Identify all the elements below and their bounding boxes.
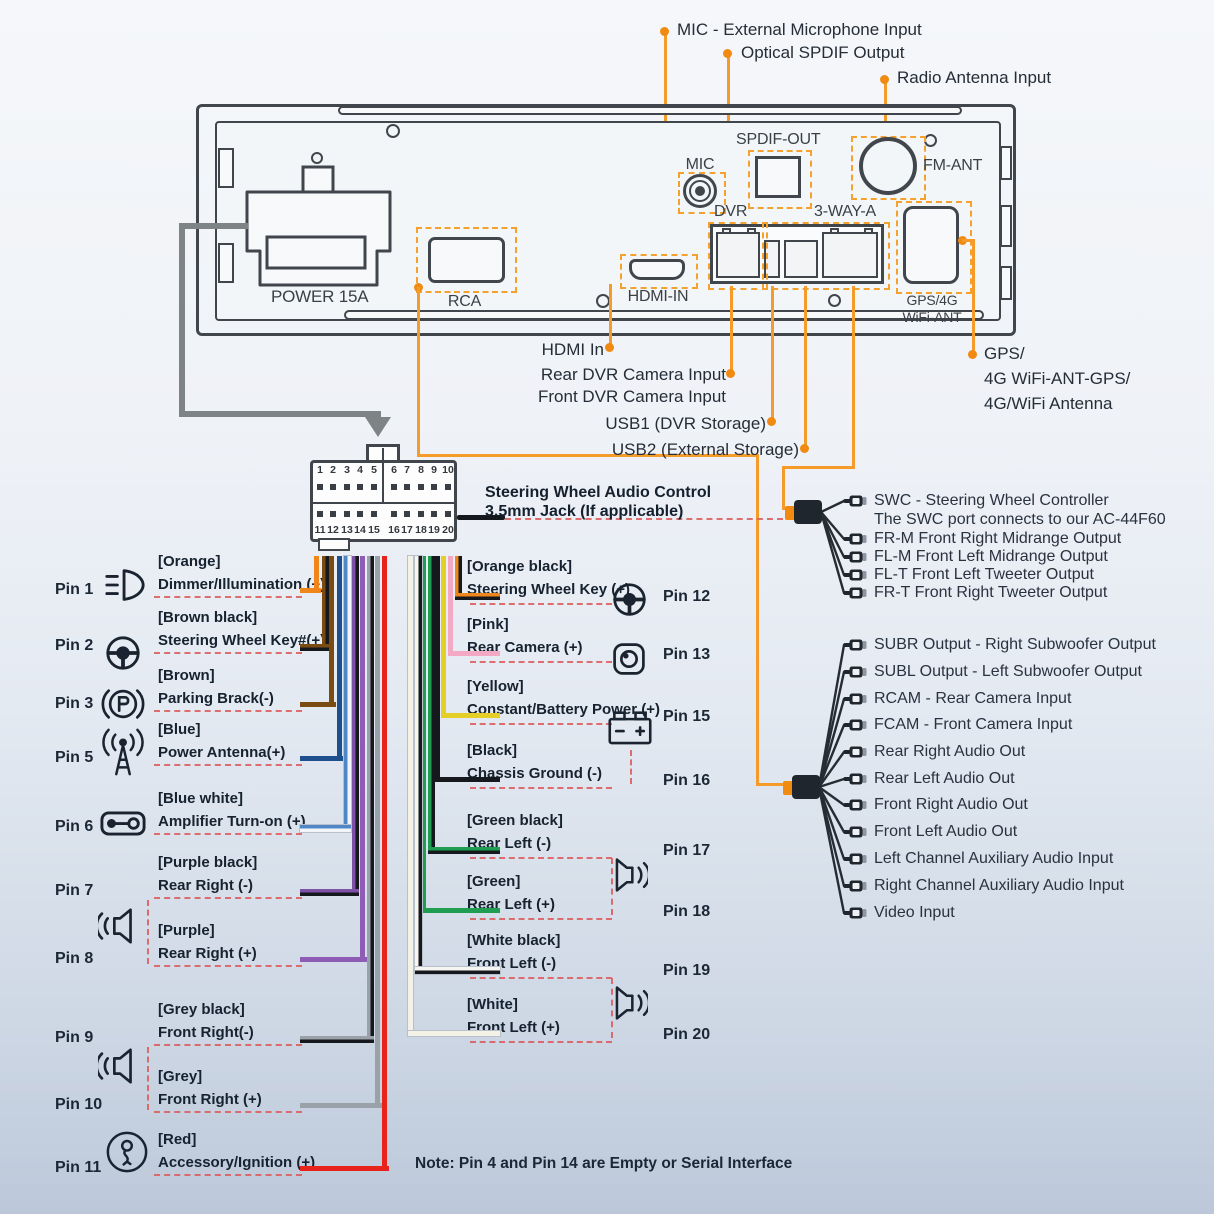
- wire-function-label: Front Right(-): [158, 1024, 254, 1041]
- wire-vertical: [352, 556, 359, 896]
- wire-vertical: [408, 556, 413, 1036]
- label-gps-1: GPS/: [984, 344, 1025, 364]
- connector-pin: [344, 511, 350, 517]
- wire-function-label: Parking Brack(-): [158, 690, 274, 707]
- antenna-icon: [98, 726, 148, 778]
- wire-vertical: [360, 556, 365, 962]
- wire-function-label: Accessory/Ignition (+): [158, 1154, 315, 1171]
- connector-pin: [317, 484, 323, 490]
- connector-pin-number: 15: [366, 524, 382, 536]
- power-cable-h1: [180, 223, 248, 229]
- connector-pin: [371, 484, 377, 490]
- wire-horizontal: [300, 1166, 389, 1171]
- harness-item-label: SUBR Output - Right Subwoofer Output: [874, 636, 1156, 654]
- wire-function-label: Power Antenna(+): [158, 744, 285, 761]
- wire-color-label: [Black]: [467, 742, 517, 759]
- wire-horizontal: [448, 651, 500, 656]
- connector-pin-number: 20: [440, 524, 456, 536]
- leader-gps-v: [972, 239, 975, 354]
- pin-number: Pin 20: [663, 1026, 710, 1044]
- rca-plug-icon: [842, 692, 868, 706]
- label-radio-antenna: Radio Antenna Input: [897, 68, 1051, 88]
- headlight-icon: [103, 566, 147, 604]
- speaker-icon: [604, 984, 648, 1022]
- wire-underline: [154, 1044, 302, 1046]
- leader-usb1-dot: [767, 417, 776, 426]
- wire-horizontal: [300, 1103, 382, 1108]
- harness-item-label: FCAM - Front Camera Input: [874, 716, 1072, 734]
- leader-3way-h: [782, 466, 855, 469]
- wire-horizontal: [300, 1036, 374, 1043]
- harness-item-label: SUBL Output - Left Subwoofer Output: [874, 663, 1142, 681]
- connector-pin: [317, 511, 323, 517]
- wire-horizontal: [300, 825, 351, 832]
- av-hub-connector: [792, 775, 820, 799]
- wire-underline: [470, 857, 612, 859]
- wire-horizontal: [441, 713, 500, 718]
- pin-number: Pin 19: [663, 962, 710, 980]
- wire-vertical: [367, 556, 374, 1043]
- rca-plug-icon: [842, 718, 868, 732]
- label-usb1: USB1 (DVR Storage): [605, 414, 766, 434]
- label-rear-dvr-cam: Rear DVR Camera Input: [541, 365, 726, 385]
- pin-number: Pin 3: [55, 695, 93, 713]
- pin-number: Pin 15: [663, 708, 710, 726]
- connector-pin: [357, 484, 363, 490]
- battery-icon: [607, 707, 653, 746]
- power-port-label: POWER 15A: [271, 287, 368, 307]
- swc-hub-connector: [794, 500, 822, 524]
- panel-left-bracket-2: [218, 243, 234, 283]
- wire-vertical: [441, 556, 446, 718]
- wire-color-label: [Red]: [158, 1131, 196, 1148]
- harness-item-label: Rear Right Audio Out: [874, 743, 1025, 761]
- connector-pin: [330, 484, 336, 490]
- pin-number: Pin 18: [663, 903, 710, 921]
- wire-underline: [154, 833, 302, 835]
- rca-plug-icon: [842, 879, 868, 893]
- label-usb2: USB2 (External Storage): [612, 440, 799, 460]
- pin-number: Pin 17: [663, 842, 710, 860]
- wire-color-label: [Brown black]: [158, 609, 257, 626]
- wire-vertical: [337, 556, 342, 761]
- camera-icon: [611, 641, 647, 677]
- wire-function-label: Front Right (+): [158, 1091, 262, 1108]
- screw-hole: [596, 294, 610, 308]
- wire-horizontal: [428, 847, 500, 854]
- gps-port: [903, 206, 959, 284]
- mic-jack-center: [695, 186, 705, 196]
- wire-vertical: [329, 556, 334, 707]
- wire-horizontal: [300, 588, 321, 593]
- wire-vertical: [322, 556, 329, 651]
- spdif-port: [755, 156, 801, 198]
- wire-color-label: [White]: [467, 996, 518, 1013]
- wire-horizontal: [435, 777, 500, 782]
- wire-color-label: [Blue]: [158, 721, 201, 738]
- wire-color-label: [Green black]: [467, 812, 563, 829]
- connector-divider-h: [313, 502, 454, 504]
- rca-plug-icon: [842, 550, 868, 564]
- rca-plug-icon: [842, 745, 868, 759]
- wire-horizontal: [421, 908, 500, 913]
- wire-function-label: Amplifier Turn-on (+): [158, 813, 306, 830]
- wire-color-label: [Brown]: [158, 667, 215, 684]
- harness-item-label: FL-T Front Left Tweeter Output: [874, 566, 1094, 584]
- connector-pin: [404, 484, 410, 490]
- wire-color-label: [Blue white]: [158, 790, 243, 807]
- harness-item-label: FR-M Front Right Midrange Output: [874, 530, 1121, 548]
- rca-port-label: RCA: [416, 293, 513, 311]
- pin-number: Pin 5: [55, 749, 93, 767]
- swc-jack-title-2: 3.5mm Jack (If applicable): [485, 503, 683, 521]
- leader-dvr-cam-dot: [726, 369, 735, 378]
- wire-color-label: [Purple]: [158, 922, 215, 939]
- hdmi-port-label: HDMI-IN: [618, 288, 698, 306]
- pin-number: Pin 1: [55, 581, 93, 599]
- pin-number: Pin 12: [663, 588, 710, 606]
- connector-pin: [357, 511, 363, 517]
- connector-pin-number: 10: [440, 464, 456, 476]
- rca-plug-icon: [842, 772, 868, 786]
- pin-number: Pin 2: [55, 637, 93, 655]
- wire-underline: [154, 764, 302, 766]
- wire-vertical: [415, 556, 422, 974]
- leader-rca-v1: [417, 287, 420, 457]
- panel-top-lip: [338, 106, 962, 115]
- leader-usb2-dot: [800, 444, 809, 453]
- rca-plug-icon: [842, 586, 868, 600]
- wire-horizontal: [300, 889, 359, 896]
- wire-horizontal: [300, 702, 336, 707]
- connector-pin: [445, 484, 451, 490]
- connector-pin: [418, 511, 424, 517]
- wire-color-label: [White black]: [467, 932, 560, 949]
- connector-divider-v: [382, 462, 384, 502]
- connector-bottom-notch: [318, 538, 350, 551]
- wire-horizontal: [415, 967, 500, 974]
- leader-gps-dot: [968, 350, 977, 359]
- pin-number: Pin 9: [55, 1029, 93, 1047]
- steering-wheel-icon: [611, 581, 648, 618]
- label-gps-3: 4G/WiFi Antenna: [984, 394, 1113, 414]
- speaker-pair-dash-78: [147, 900, 149, 964]
- wire-underline: [470, 918, 612, 920]
- power-cable-v: [179, 223, 185, 417]
- connector-pin: [371, 511, 377, 517]
- label-gps-2: 4G WiFi-ANT-GPS/: [984, 369, 1130, 389]
- ignition-key-icon: [105, 1130, 149, 1174]
- wire-underline: [154, 1111, 302, 1113]
- rca-plug-icon: [842, 494, 868, 508]
- wire-underline: [154, 1174, 302, 1176]
- wire-vertical: [382, 556, 387, 1171]
- harness-item-label: Left Channel Auxiliary Audio Input: [874, 850, 1113, 868]
- rca-port: [428, 237, 505, 283]
- panel-bottom-slot: [344, 310, 984, 320]
- wire-underline: [154, 897, 302, 899]
- label-optical-spdif: Optical SPDIF Output: [741, 43, 904, 63]
- steering-wheel-icon: [104, 634, 142, 672]
- panel-right-bracket-2: [1000, 205, 1012, 247]
- harness-item-label: FL-M Front Left Midrange Output: [874, 548, 1108, 566]
- connector-pin: [445, 511, 451, 517]
- leader-mic-dot: [660, 27, 669, 36]
- swc-jack-title-1: Steering Wheel Audio Control: [485, 484, 711, 502]
- speaker-icon: [98, 1046, 144, 1086]
- three-way-dashed-box: [762, 222, 890, 290]
- connector-pin: [344, 484, 350, 490]
- rca-plug-icon: [842, 852, 868, 866]
- three-way-label: 3-WAY-A: [814, 203, 876, 221]
- parking-brake-icon: [100, 684, 146, 724]
- wire-underline: [154, 652, 302, 654]
- leader-dvr-cam: [730, 286, 733, 372]
- leader-rca-v2: [756, 454, 759, 786]
- rca-plug-icon: [842, 665, 868, 679]
- wire-color-label: [Pink]: [467, 616, 509, 633]
- dvr-dashed-box: [708, 222, 768, 290]
- wire-color-label: [Orange black]: [467, 558, 572, 575]
- leader-radio-dot: [880, 75, 889, 84]
- fm-ant-port: [859, 137, 917, 195]
- amplifier-icon: [100, 810, 146, 837]
- connector-pin-number: 5: [366, 464, 382, 476]
- wire-horizontal: [408, 1031, 500, 1036]
- gps-port-label2: WiFi-ANT: [896, 309, 968, 326]
- pin-number: Pin 16: [663, 772, 710, 790]
- screw-hole: [386, 124, 400, 138]
- connector-pin: [330, 511, 336, 517]
- rca-plug-icon: [842, 568, 868, 582]
- rca-plug-icon: [842, 798, 868, 812]
- pin-number: Pin 7: [55, 882, 93, 900]
- gps-port-label1: GPS/4G: [896, 292, 968, 309]
- leader-spdif-dot: [723, 49, 732, 58]
- dvr-label: DVR: [714, 203, 747, 221]
- connector-pin: [391, 484, 397, 490]
- pin-number: Pin 6: [55, 818, 93, 836]
- wire-underline: [470, 977, 612, 979]
- harness-item-label: Front Right Audio Out: [874, 796, 1028, 814]
- wire-horizontal: [300, 957, 367, 962]
- rca-plug-icon: [842, 906, 868, 920]
- leader-hdmi-dot: [605, 343, 614, 352]
- pin-number: Pin 13: [663, 646, 710, 664]
- power-connector: [244, 146, 394, 288]
- wiring-diagram: MIC - External Microphone Input Optical …: [0, 0, 1214, 1214]
- harness-item-label: Video Input: [874, 904, 955, 922]
- wire-underline: [470, 787, 612, 789]
- wire-function-label: Rear Right (-): [158, 877, 253, 894]
- wire-color-label: [Yellow]: [467, 678, 524, 695]
- bottom-note: Note: Pin 4 and Pin 14 are Empty or Seri…: [415, 1155, 792, 1173]
- leader-usb2: [804, 286, 807, 447]
- label-hdmi-in: HDMI In: [542, 340, 604, 360]
- wire-underline: [154, 710, 302, 712]
- leader-3way-v2: [782, 466, 785, 510]
- power-cable-arrow: [365, 417, 391, 437]
- wire-underline: [154, 596, 302, 598]
- connector-pin: [404, 511, 410, 517]
- fm-ant-label: FM-ANT: [923, 157, 982, 175]
- wire-underline: [470, 1041, 612, 1043]
- panel-left-bracket-1: [218, 148, 234, 188]
- harness-item-label: Right Channel Auxiliary Audio Input: [874, 877, 1124, 895]
- wire-horizontal: [300, 756, 344, 761]
- wire-underline: [470, 723, 612, 725]
- rca-plug-icon: [842, 532, 868, 546]
- rca-plug-icon: [842, 825, 868, 839]
- wire-vertical: [344, 556, 351, 832]
- connector-pin: [418, 484, 424, 490]
- connector-pin: [431, 484, 437, 490]
- power-cable-h2: [179, 411, 381, 417]
- leader-hdmi: [609, 284, 612, 346]
- wire-vertical: [375, 556, 380, 1108]
- speaker-pair-dash-910: [147, 1047, 149, 1110]
- label-mic-external-input: MIC - External Microphone Input: [677, 20, 922, 40]
- panel-right-bracket-3: [1000, 266, 1012, 300]
- harness-item-sublabel: The SWC port connects to our AC-44F60: [874, 511, 1166, 529]
- leader-3way-v1: [852, 286, 855, 469]
- connector-pin: [431, 511, 437, 517]
- harness-item-label: SWC - Steering Wheel Controller: [874, 492, 1109, 510]
- battery-ground-dash: [630, 750, 632, 784]
- hdmi-port: [629, 259, 685, 280]
- pin-number: Pin 8: [55, 950, 93, 968]
- wire-vertical: [428, 556, 435, 854]
- rca-plug-icon: [842, 638, 868, 652]
- wire-function-label: Rear Right (+): [158, 945, 257, 962]
- wire-underline: [470, 661, 612, 663]
- panel-right-bracket-1: [1000, 146, 1012, 180]
- harness-item-label: RCAM - Rear Camera Input: [874, 690, 1071, 708]
- wire-vertical: [448, 556, 453, 656]
- wire-underline: [470, 603, 612, 605]
- wire-vertical: [435, 556, 440, 782]
- wire-color-label: [Orange]: [158, 553, 221, 570]
- wire-horizontal: [455, 593, 500, 600]
- connector-cable-stub: [382, 448, 384, 462]
- wire-color-label: [Grey]: [158, 1068, 202, 1085]
- pin-number: Pin 10: [55, 1096, 102, 1114]
- connector-pin: [391, 511, 397, 517]
- spdif-port-label: SPDIF-OUT: [736, 131, 820, 149]
- speaker-icon: [98, 906, 144, 946]
- leader-usb1: [771, 286, 774, 420]
- wire-color-label: [Green]: [467, 873, 520, 890]
- screw-hole: [828, 294, 841, 307]
- label-front-dvr-cam: Front DVR Camera Input: [538, 387, 726, 407]
- wire-underline: [154, 965, 302, 967]
- speaker-icon: [604, 856, 648, 894]
- wire-color-label: [Purple black]: [158, 854, 257, 871]
- harness-item-label: Front Left Audio Out: [874, 823, 1017, 841]
- wire-color-label: [Grey black]: [158, 1001, 245, 1018]
- pin-number: Pin 11: [55, 1159, 101, 1177]
- harness-item-label: Rear Left Audio Out: [874, 770, 1015, 788]
- harness-item-label: FR-T Front Right Tweeter Output: [874, 584, 1107, 602]
- wire-horizontal: [300, 644, 329, 651]
